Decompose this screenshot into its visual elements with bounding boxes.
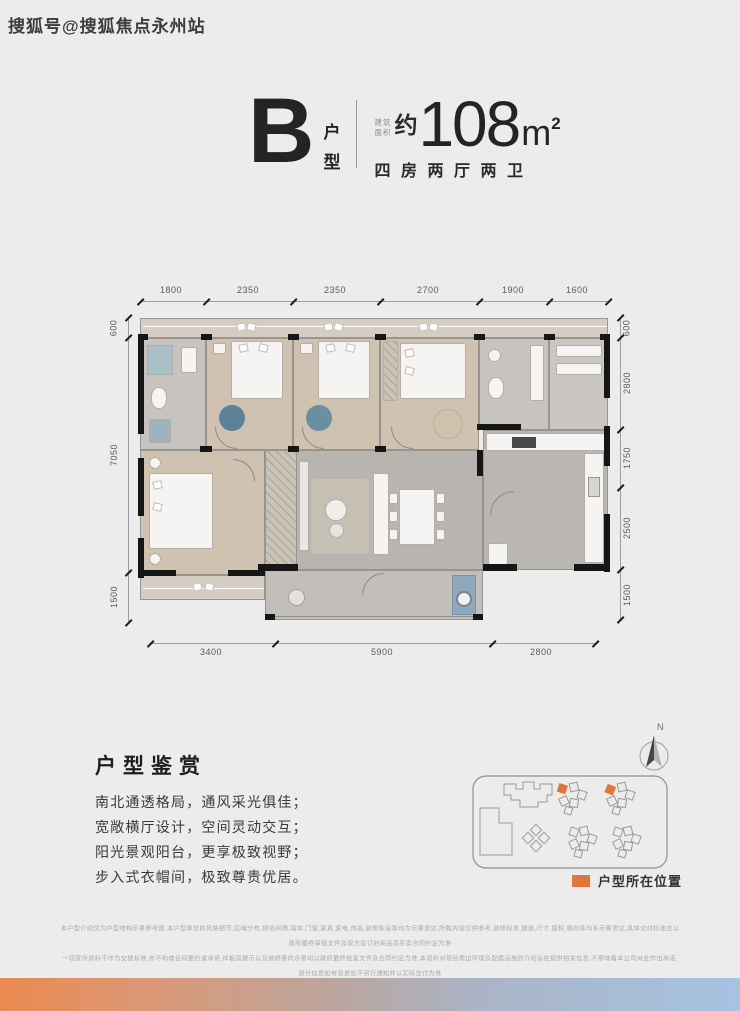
door-arc <box>215 427 237 449</box>
washing-machine <box>456 591 472 607</box>
wardrobe <box>383 341 398 401</box>
kitchen-counter <box>486 433 605 451</box>
room-bedroom-2 <box>206 338 293 450</box>
pillow <box>333 322 344 332</box>
bathtub <box>530 345 544 401</box>
building-cluster <box>613 826 641 858</box>
door-arc <box>391 427 413 449</box>
dim-right: 600 2800 1750 2500 1500 <box>614 318 636 623</box>
highlighted-unit <box>557 783 568 794</box>
sofa <box>373 473 389 555</box>
wall-segment <box>375 334 386 340</box>
pillow <box>236 322 246 332</box>
dim-label: 1500 <box>109 586 119 608</box>
room-cloak <box>549 338 608 430</box>
dim-label: 2500 <box>622 517 632 539</box>
dim-left: 600 7050 1500 <box>116 318 136 623</box>
area-label: 建筑 面积 <box>374 118 391 138</box>
wall-segment <box>375 446 386 452</box>
dim-bottom: 3400 5900 2800 <box>140 634 608 658</box>
nightstand <box>149 457 161 469</box>
dim-label: 2350 <box>237 285 259 295</box>
dim-label: 5900 <box>371 647 393 657</box>
area-block: 建筑 面积 约 108 m2 四房两厅两卫 <box>374 98 560 181</box>
legend-swatch <box>572 875 590 887</box>
dim-top: 1800 2350 2350 2700 1900 1600 <box>140 284 608 310</box>
building-cluster <box>557 782 587 815</box>
dim-label: 600 <box>108 320 118 337</box>
watermark: 搜狐号@搜狐焦点永州站 <box>8 12 206 37</box>
nightstand <box>213 343 226 354</box>
stove <box>512 437 536 448</box>
building-cluster <box>604 782 635 815</box>
wall-segment <box>604 426 610 466</box>
wall-segment <box>288 334 299 340</box>
door-arc <box>362 573 384 595</box>
door-arc <box>233 459 255 481</box>
building-cluster <box>522 824 549 851</box>
area-label-line1: 建筑 <box>374 118 391 128</box>
unit-type-char-1: 户 <box>323 118 340 148</box>
room-bedroom-3 <box>293 338 380 450</box>
wall-segment <box>138 338 144 434</box>
dim-label: 2800 <box>530 647 552 657</box>
tv-cabinet <box>299 461 309 551</box>
wall-segment <box>574 564 608 571</box>
wall-segment <box>473 614 483 620</box>
dim-line <box>140 301 608 302</box>
dim-label: 2700 <box>417 285 439 295</box>
dim-label: 600 <box>621 320 631 337</box>
section-title-appreciation: 户型鉴赏 <box>95 750 207 780</box>
kitchen-counter-side <box>584 453 604 563</box>
pillow <box>192 582 202 592</box>
pillow <box>204 582 215 592</box>
siteplan-legend: 户型所在位置 <box>572 871 682 890</box>
door-arc <box>490 491 514 515</box>
window-glass-line <box>143 326 607 327</box>
dim-label: 1900 <box>502 285 524 295</box>
dining-table <box>399 489 435 545</box>
wall-segment <box>200 446 212 452</box>
wall-segment <box>201 334 212 340</box>
dim-label: 2350 <box>324 285 346 295</box>
area-exponent: 2 <box>551 114 560 133</box>
area-value: 108 <box>418 98 519 150</box>
dim-tick <box>617 616 624 623</box>
room-walkin-closet <box>265 450 297 570</box>
appreciation-lines: 南北通透格局，通风采光俱佳； 宽敞横厅设计，空间灵动交互； 阳光景观阳台，更享极… <box>95 795 308 895</box>
building-outline <box>504 782 552 807</box>
dim-line <box>128 318 129 623</box>
building-outline <box>480 808 512 855</box>
wall-segment <box>477 450 483 476</box>
balcony-rail-line <box>268 616 482 617</box>
dining-chair <box>436 529 445 540</box>
side-table <box>329 523 344 538</box>
toilet <box>488 377 504 399</box>
appreciation-line: 阳光景观阳台，更享极致视野； <box>95 845 308 859</box>
dim-line <box>150 643 595 644</box>
wall-segment <box>544 334 555 340</box>
fridge <box>488 543 508 565</box>
nightstand <box>300 343 313 354</box>
unit-header: B 户 型 建筑 面积 约 108 m2 四房两厅两卫 <box>248 92 561 181</box>
wall-segment <box>140 570 176 576</box>
area-label-line2: 面积 <box>374 128 391 138</box>
area-unit-m: m <box>521 112 551 153</box>
wall-segment <box>483 564 517 571</box>
pillow <box>323 322 333 332</box>
toilet <box>151 387 167 409</box>
room-balcony <box>265 570 483 620</box>
wall-segment <box>477 424 521 430</box>
unit-letter: B <box>248 92 314 170</box>
dim-label: 1600 <box>566 285 588 295</box>
wall-segment <box>138 458 144 516</box>
coffee-table <box>325 499 347 521</box>
shower <box>147 345 173 375</box>
wall-segment <box>604 338 610 398</box>
door-arc <box>302 427 324 449</box>
dim-label: 7050 <box>109 444 119 466</box>
dim-line <box>620 318 621 621</box>
dining-chair <box>436 511 445 522</box>
dining-chair <box>389 511 398 522</box>
unit-type-char-2: 型 <box>323 148 340 178</box>
dim-label: 2800 <box>622 372 632 394</box>
area-approx: 约 <box>394 106 417 140</box>
nightstand <box>149 553 161 565</box>
dim-tick <box>605 298 612 305</box>
highlighted-unit <box>604 784 616 796</box>
dim-label: 1500 <box>622 584 632 606</box>
dim-label: 3400 <box>200 647 222 657</box>
room-bathroom-2 <box>479 338 549 430</box>
dim-label: 1750 <box>622 447 632 469</box>
round-rug <box>433 409 463 439</box>
pillow <box>418 322 428 332</box>
gradient-footer-bar <box>0 978 740 1011</box>
header-divider <box>356 100 357 168</box>
wall-segment <box>265 614 275 620</box>
sink <box>488 349 501 362</box>
wall-segment <box>474 334 485 340</box>
appreciation-line: 步入式衣帽间，极致尊贵优居。 <box>95 870 308 884</box>
cabinet <box>556 345 602 357</box>
cabinet <box>556 363 602 375</box>
disclaimer-line: 本户型介绍仅为户型结构示意参考图,本户型单位的风格细节,区域分布,相邻间隔,墙体… <box>60 922 680 952</box>
wall-segment <box>288 446 299 452</box>
rooms-description: 四房两厅两卫 <box>374 157 560 181</box>
wall-segment <box>228 570 265 576</box>
compass-north-icon: N <box>626 718 682 776</box>
area-unit: m2 <box>521 107 560 150</box>
dining-chair <box>389 493 398 504</box>
dim-label: 1800 <box>160 285 182 295</box>
legend-label: 户型所在位置 <box>598 871 682 890</box>
kitchen-sink <box>588 477 600 497</box>
pillow <box>246 322 257 332</box>
room-bathroom-1 <box>140 338 206 450</box>
plant <box>288 589 305 606</box>
unit-type-label: 户 型 <box>323 118 340 178</box>
room-master-bedroom <box>140 450 265 575</box>
room-kitchen <box>483 430 608 570</box>
dining-chair <box>436 493 445 504</box>
bathtub <box>149 419 171 443</box>
room-bay-window-master <box>140 575 265 600</box>
dining-chair <box>389 529 398 540</box>
appreciation-line: 南北通透格局，通风采光俱佳； <box>95 795 308 809</box>
dim-tick <box>125 619 132 626</box>
compass-n-label: N <box>657 722 664 732</box>
room-bedroom-4 <box>380 338 479 450</box>
sink <box>181 347 197 373</box>
siteplan-map <box>470 772 670 872</box>
building-cluster <box>569 826 597 858</box>
appreciation-line: 宽敞横厅设计，空间灵动交互； <box>95 820 308 834</box>
pillow <box>428 322 439 332</box>
dim-tick <box>592 640 599 647</box>
floorplan <box>140 318 608 623</box>
